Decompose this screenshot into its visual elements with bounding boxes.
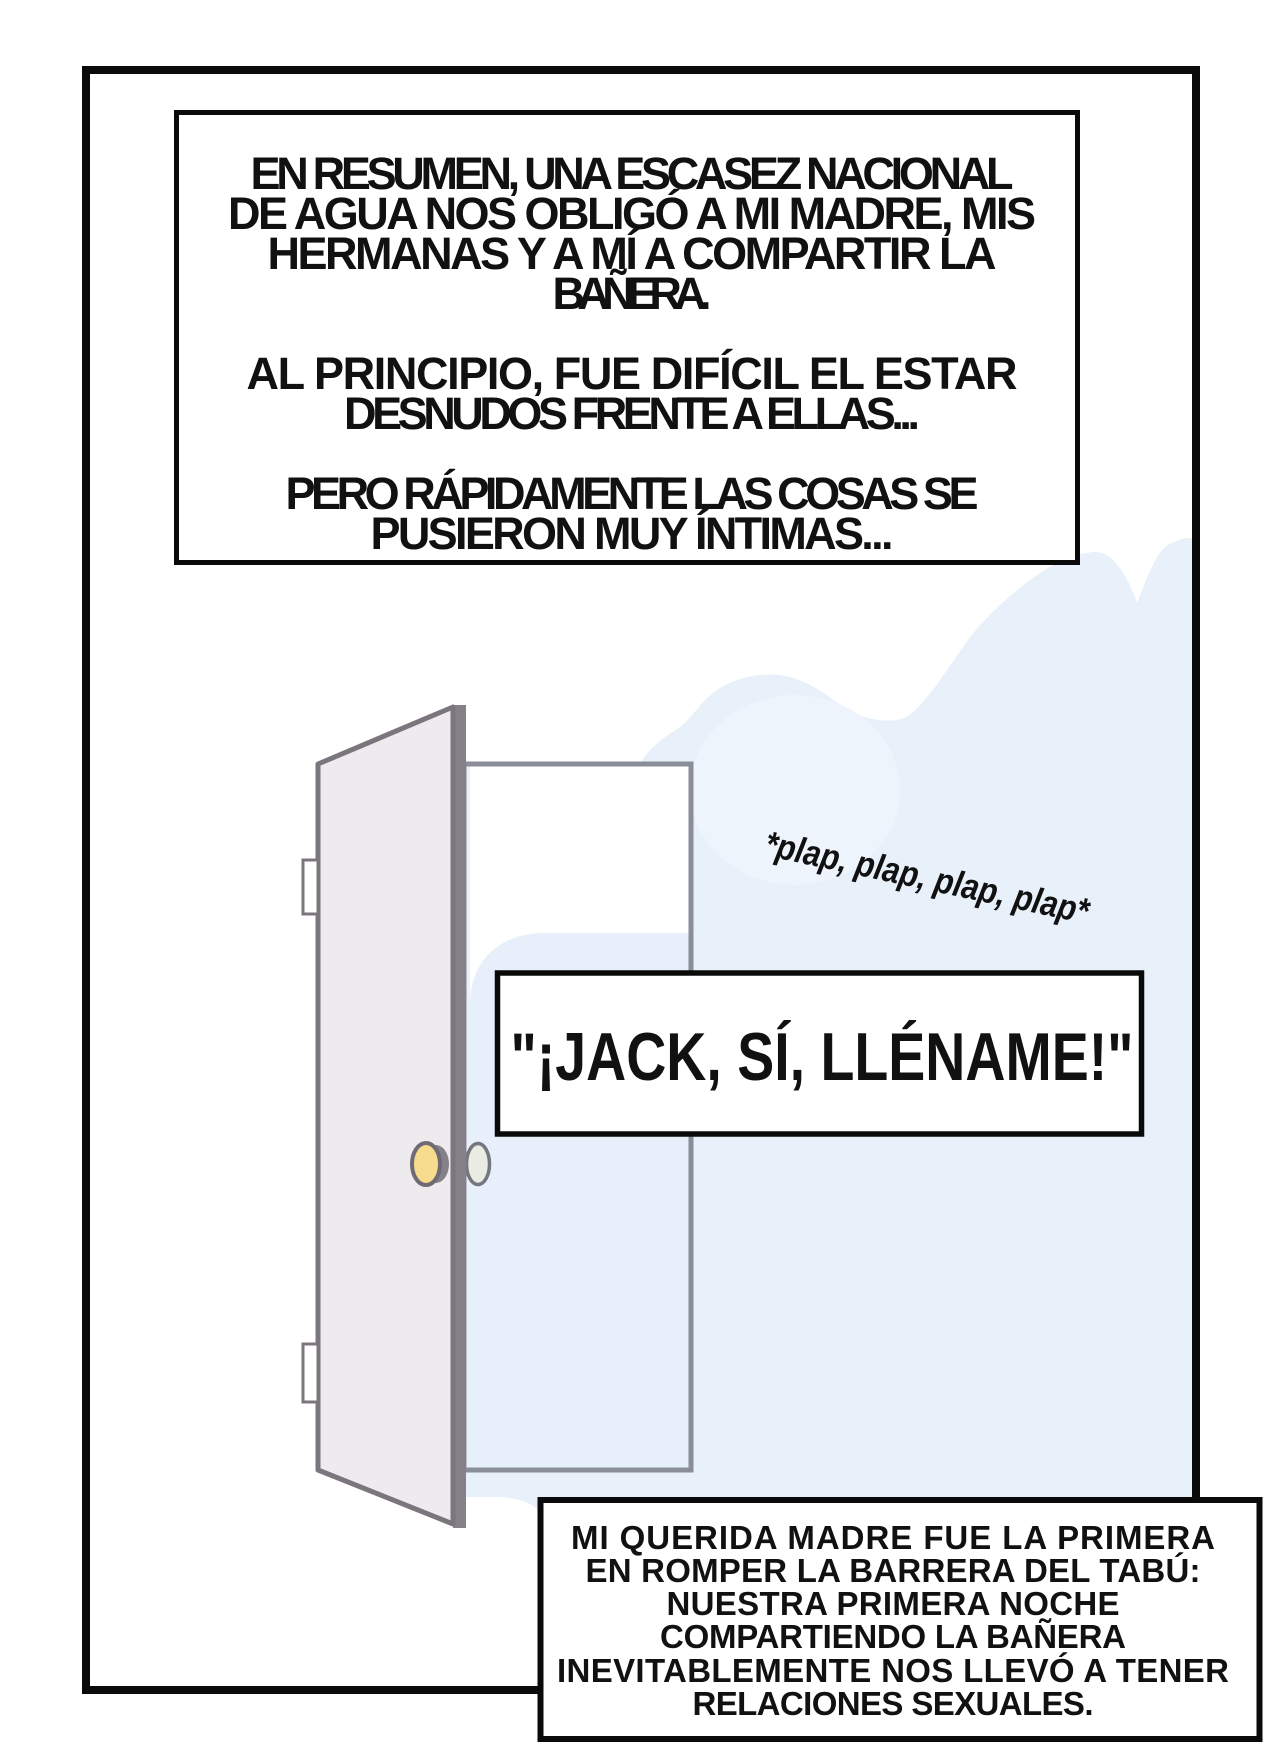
svg-text:DESNUDOS FRENTE A ELLAS...: DESNUDOS FRENTE A ELLAS...: [344, 388, 920, 439]
svg-text:NUESTRA PRIMERA NOCHE: NUESTRA PRIMERA NOCHE: [667, 1585, 1120, 1622]
svg-text:MI QUERIDA MADRE FUE LA PRIMER: MI QUERIDA MADRE FUE LA PRIMERA: [571, 1519, 1215, 1556]
svg-text:RELACIONES SEXUALES.: RELACIONES SEXUALES.: [693, 1685, 1094, 1722]
svg-text:"¡JACK, SÍ, LLÉNAME!": "¡JACK, SÍ, LLÉNAME!": [511, 1019, 1134, 1095]
svg-text:EN ROMPER LA BARRERA DEL TABÚ:: EN ROMPER LA BARRERA DEL TABÚ:: [586, 1552, 1201, 1589]
svg-text:BAÑERA.: BAÑERA.: [553, 268, 712, 319]
svg-text:INEVITABLEMENTE NOS LLEVÓ A TE: INEVITABLEMENTE NOS LLEVÓ A TENER: [557, 1652, 1229, 1689]
svg-text:COMPARTIENDO LA BAÑERA: COMPARTIENDO LA BAÑERA: [660, 1618, 1126, 1655]
svg-text:PUSIERON MUY ÍNTIMAS...: PUSIERON MUY ÍNTIMAS...: [371, 508, 894, 559]
